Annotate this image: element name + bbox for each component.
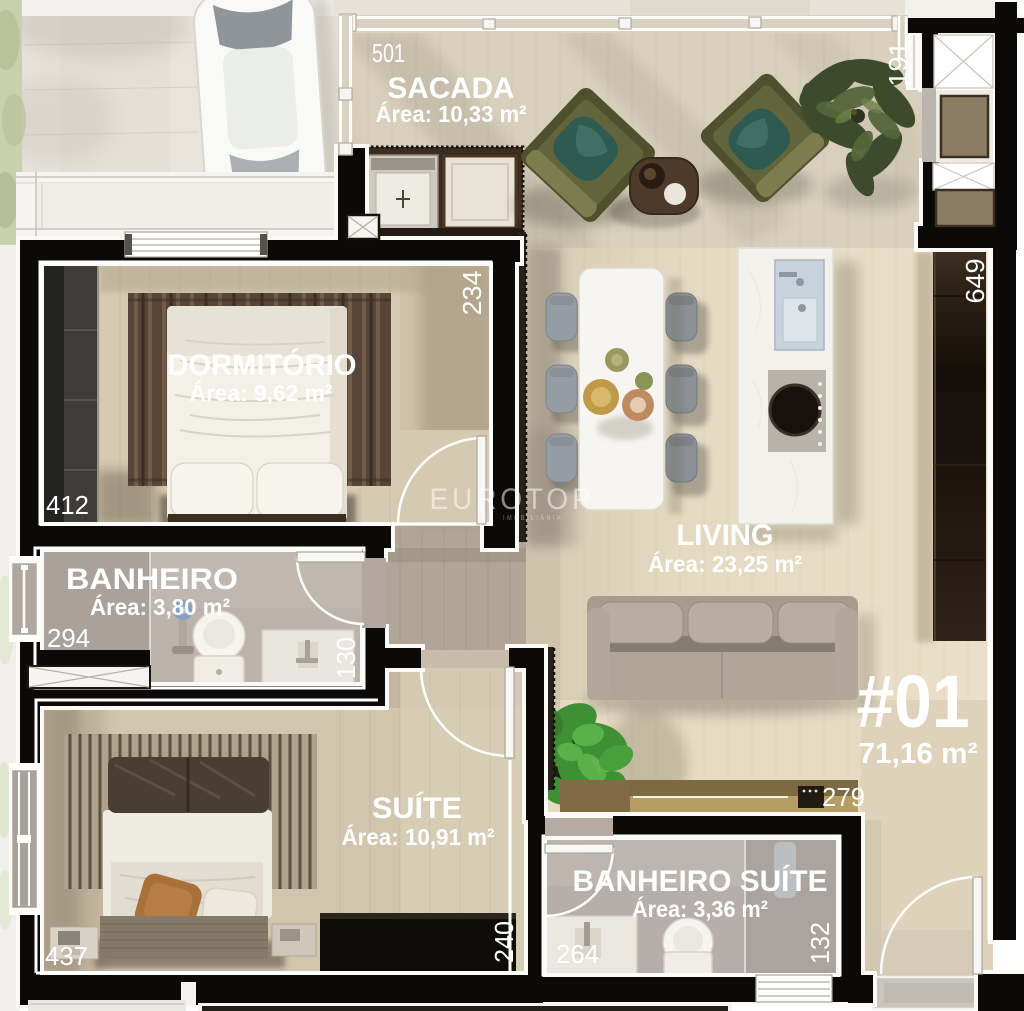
svg-text:SUÍTE: SUÍTE [372, 791, 462, 825]
svg-text:264: 264 [556, 939, 599, 969]
svg-text:294: 294 [47, 623, 90, 653]
svg-text:EUROTOP: EUROTOP [430, 483, 595, 516]
svg-text:BANHEIRO: BANHEIRO [66, 563, 238, 596]
svg-text:234: 234 [457, 271, 487, 316]
svg-text:Área: 3,80 m²: Área: 3,80 m² [90, 593, 230, 620]
svg-text:71,16 m²: 71,16 m² [859, 738, 978, 770]
svg-text:Área: 9,62 m²: Área: 9,62 m² [190, 379, 333, 406]
svg-text:LIVING: LIVING [677, 519, 774, 552]
svg-text:IMOBILIÁRIA: IMOBILIÁRIA [503, 513, 563, 522]
svg-text:Área: 10,91 m²: Área: 10,91 m² [342, 823, 495, 850]
svg-text:412: 412 [46, 490, 89, 520]
svg-text:Área: 23,25 m²: Área: 23,25 m² [648, 550, 802, 577]
svg-text:Área: 10,33 m²: Área: 10,33 m² [376, 100, 527, 127]
svg-text:DORMITÓRIO: DORMITÓRIO [168, 348, 357, 382]
svg-text:130: 130 [331, 637, 361, 679]
svg-text:#01: #01 [857, 660, 970, 743]
svg-text:240: 240 [489, 921, 519, 963]
svg-text:501: 501 [372, 38, 405, 68]
svg-text:Área: 3,36 m²: Área: 3,36 m² [632, 895, 768, 922]
svg-text:132: 132 [805, 922, 835, 964]
svg-text:BANHEIRO SUÍTE: BANHEIRO SUÍTE [573, 864, 828, 898]
svg-text:649: 649 [960, 259, 990, 304]
svg-text:279: 279 [822, 782, 865, 812]
svg-text:437: 437 [45, 941, 88, 971]
svg-text:191: 191 [883, 42, 913, 87]
